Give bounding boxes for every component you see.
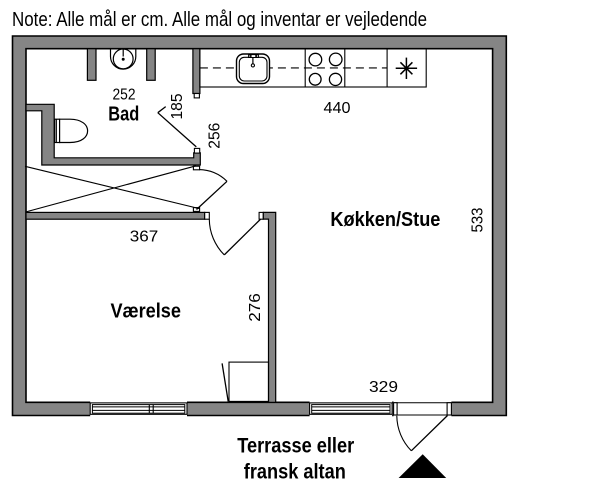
svg-text:fransk altan: fransk altan: [244, 461, 346, 484]
svg-text:329: 329: [369, 379, 398, 396]
svg-text:276: 276: [247, 293, 264, 322]
svg-text:185: 185: [169, 93, 186, 119]
svg-text:533: 533: [470, 207, 487, 232]
svg-text:440: 440: [324, 100, 351, 117]
svg-text:252: 252: [113, 87, 136, 104]
svg-text:256: 256: [207, 123, 224, 149]
svg-text:Køkken/Stue: Køkken/Stue: [330, 209, 440, 231]
svg-text:Terrasse eller: Terrasse eller: [237, 435, 354, 458]
svg-text:367: 367: [130, 229, 159, 246]
svg-text:Note: Alle mål er cm. Alle mål: Note: Alle mål er cm. Alle mål og invent…: [12, 9, 427, 31]
svg-text:Bad: Bad: [108, 104, 139, 126]
svg-text:Værelse: Værelse: [110, 301, 181, 323]
